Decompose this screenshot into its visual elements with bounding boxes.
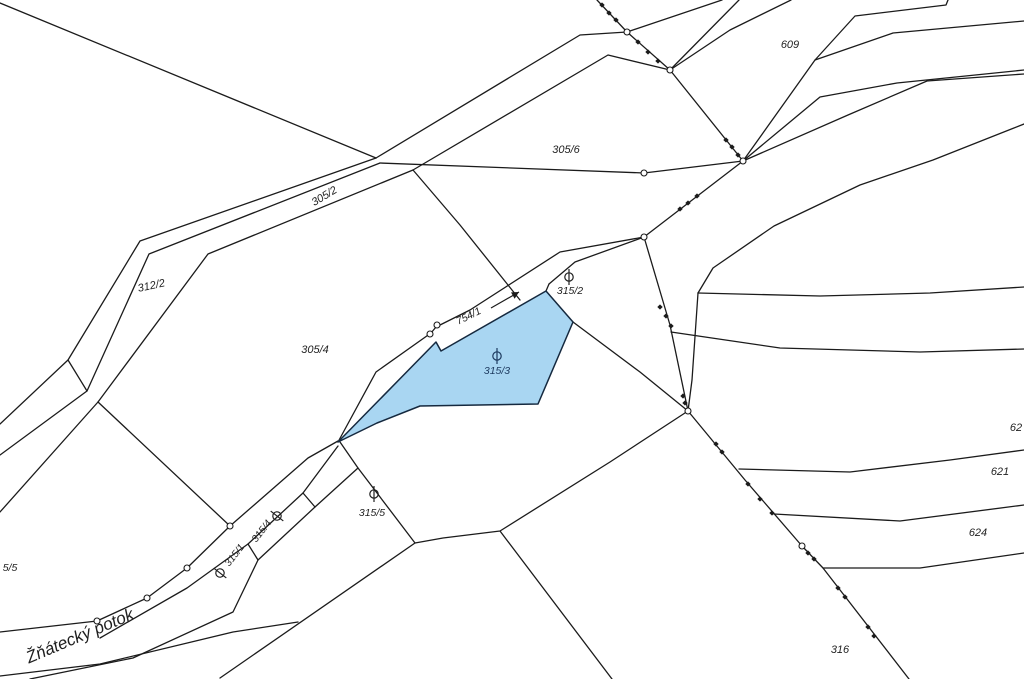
boundary-line-terrace-line-2 [671,332,1024,352]
boundary-point-circle [624,29,630,35]
parcel-label-315-4: 315/4 [250,518,274,545]
boundary-line-parcel-305-6-south [380,161,743,173]
boundary-point-markers-layer [94,2,877,638]
parcel-label-305-2: 305/2 [310,184,340,208]
parcel-label-754-1: 754/1 [454,305,483,327]
boundary-line-terrace-line-4 [774,505,1024,521]
boundary-line-boundary-east-of-blue [573,322,688,411]
boundary-point-circle [667,67,673,73]
boundary-point-circle [184,565,190,571]
highlighted-water-parcel-layer [338,291,573,442]
highlighted-parcel-315-3[interactable] [338,291,573,442]
parcel-label-312-2: 312/2 [137,277,166,294]
boundary-point-dot [871,633,876,638]
parcel-label-5-5: 5/5 [3,562,18,574]
boundary-line-terrace-sweep-4 [698,124,1024,293]
grassland-symbol [565,269,573,285]
boundary-line-stream-bank-circles [0,441,338,632]
parcel-label-62: 62 [1010,422,1022,434]
boundary-point-circle [227,523,233,529]
boundary-line-divider-315-1-4 [248,544,258,560]
boundary-point-circle [740,158,746,164]
cadastral-map-canvas[interactable]: 305/2312/2305/4305/6609754/1315/2315/331… [0,0,1024,679]
boundary-point-circle [434,322,440,328]
cadastral-map-svg: 305/2312/2305/4305/6609754/1315/2315/331… [0,0,1024,679]
boundary-line-wedge-line-1 [670,0,739,70]
boundary-line-parcel-305-6-west [413,170,520,300]
boundary-point-dot [769,510,774,515]
boundary-point-dot [757,496,762,501]
boundary-point-circle [144,595,150,601]
grassland-symbol [268,508,286,524]
boundary-point-circle [427,331,433,337]
boundary-point-dot [655,58,660,63]
parcel-label-315-2: 315/2 [557,285,583,297]
boundary-point-circle [799,543,805,549]
boundary-line-road-nw-edge [376,0,722,158]
boundary-line-wedge-line-2 [670,0,791,70]
boundary-line-strip-divider-312 [68,360,87,391]
boundary-point-dot [657,304,662,309]
boundary-line-marked-boundary [597,0,909,679]
boundary-line-terrace-sweep-1 [815,21,1024,60]
grassland-symbol [211,565,229,581]
boundary-line-terrace-sweep-3 [743,74,1024,161]
parcel-label-315-3: 315/3 [484,365,510,377]
boundary-line-terrace-sweep-2 [743,70,1024,161]
parcel-label-305-4: 305/4 [301,344,329,356]
stream-name-label: Žňátecký potok [22,604,138,668]
parcel-label-305-6: 305/6 [552,144,580,156]
boundary-point-circle [641,170,647,176]
boundary-line-triangle-hypotenuse [0,3,376,158]
parcel-label-609: 609 [781,39,799,51]
boundary-line-stream-se-upper [549,237,644,284]
parcel-label-621: 621 [991,466,1009,478]
boundary-point-dot [645,49,650,54]
boundary-point-circle [641,234,647,240]
boundary-line-terrace-line-0 [698,287,1024,296]
grassland-symbol [370,486,378,502]
boundary-line-parcel-316-west [500,531,612,679]
boundary-line-branch-to-stream [98,402,230,526]
parcel-label-316: 316 [831,644,850,656]
boundary-line-divider-315-4-end [303,493,315,507]
boundary-line-strip-315-upper [100,446,338,638]
boundary-line-terrace-line-3 [739,450,1024,472]
parcel-label-624: 624 [969,527,987,539]
boundary-line-divider-315-2 [546,284,549,291]
boundary-line-terrace-stub [688,293,698,411]
boundary-line-terrace-line-5 [823,553,1024,568]
parcel-label-315-5: 315/5 [359,507,385,519]
boundary-line-long-south-boundary [220,411,688,678]
boundary-point-circle [685,408,691,414]
parcel-label-315-1: 315/1 [223,542,247,568]
